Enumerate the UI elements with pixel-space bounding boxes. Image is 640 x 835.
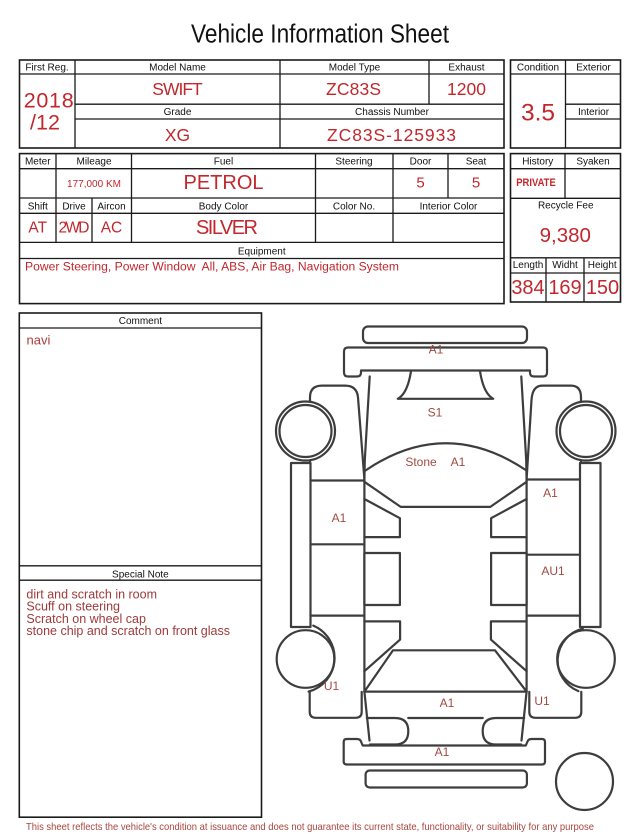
svg-text:A1: A1 xyxy=(429,343,444,357)
svg-text:A1: A1 xyxy=(451,455,466,469)
svg-text:This sheet reflects the vehicl: This sheet reflects the vehicle's condit… xyxy=(26,821,594,833)
svg-text:384: 384 xyxy=(511,277,544,299)
svg-text:Seat: Seat xyxy=(466,157,487,168)
svg-text:5: 5 xyxy=(472,175,480,192)
svg-text:Fuel: Fuel xyxy=(214,157,233,168)
svg-text:Model Type: Model Type xyxy=(329,63,381,74)
svg-text:stone chip and scratch on fron: stone chip and scratch on front glass xyxy=(26,624,230,638)
svg-text:Exhaust: Exhaust xyxy=(448,63,484,74)
svg-text:SWIFT: SWIFT xyxy=(152,79,203,99)
svg-text:Length: Length xyxy=(513,260,544,271)
svg-text:Special Note: Special Note xyxy=(112,570,169,581)
svg-text:Steering: Steering xyxy=(335,157,372,168)
svg-text:navi: navi xyxy=(27,333,51,348)
svg-text:2018: 2018 xyxy=(24,88,74,112)
svg-text:ZC83S: ZC83S xyxy=(326,79,381,99)
svg-text:Body Color: Body Color xyxy=(199,202,249,213)
svg-text:A1: A1 xyxy=(332,511,347,525)
svg-text:A1: A1 xyxy=(543,486,558,500)
svg-text:Syaken: Syaken xyxy=(576,157,609,168)
svg-text:History: History xyxy=(522,157,553,168)
svg-text:First Reg.: First Reg. xyxy=(25,63,68,74)
svg-text:PRIVATE: PRIVATE xyxy=(516,177,556,189)
svg-text:/12: /12 xyxy=(30,111,60,135)
svg-text:150: 150 xyxy=(586,277,619,299)
svg-text:Equipment: Equipment xyxy=(238,247,286,258)
svg-text:169: 169 xyxy=(548,277,581,299)
svg-text:AU1: AU1 xyxy=(541,564,565,578)
svg-text:Chassis Number: Chassis Number xyxy=(355,107,430,118)
svg-text:3.5: 3.5 xyxy=(521,99,555,126)
svg-text:AT: AT xyxy=(28,220,47,237)
svg-text:Drive: Drive xyxy=(62,202,86,213)
svg-text:Recycle Fee: Recycle Fee xyxy=(538,201,594,212)
svg-text:S1: S1 xyxy=(428,406,443,420)
svg-text:ZC83S-125933: ZC83S-125933 xyxy=(327,125,456,145)
svg-text:Widht: Widht xyxy=(552,260,578,271)
svg-text:Vehicle Information Sheet: Vehicle Information Sheet xyxy=(191,20,449,48)
svg-text:Interior Color: Interior Color xyxy=(420,202,478,213)
svg-text:Condition: Condition xyxy=(517,63,559,74)
svg-text:SILVER: SILVER xyxy=(196,217,258,239)
svg-text:XG: XG xyxy=(165,125,190,145)
svg-text:A1: A1 xyxy=(435,745,450,759)
svg-text:2WD: 2WD xyxy=(59,220,90,237)
svg-text:AC: AC xyxy=(101,220,123,237)
svg-text:Color No.: Color No. xyxy=(333,202,375,213)
svg-text:Shift: Shift xyxy=(28,202,48,213)
svg-text:PETROL: PETROL xyxy=(183,172,263,194)
svg-text:Exterior: Exterior xyxy=(576,63,611,74)
svg-text:Mileage: Mileage xyxy=(76,157,111,168)
svg-text:Power Steering, Power Window: Power Steering, Power Window All, ABS, A… xyxy=(25,262,399,274)
svg-text:Comment: Comment xyxy=(119,316,163,327)
svg-text:Height: Height xyxy=(588,260,617,271)
svg-text:U1: U1 xyxy=(324,679,340,693)
svg-text:Meter: Meter xyxy=(25,157,51,168)
svg-text:Aircon: Aircon xyxy=(97,202,125,213)
svg-text:A1: A1 xyxy=(440,696,455,710)
svg-text:U1: U1 xyxy=(534,694,550,708)
svg-text:177,000 KM: 177,000 KM xyxy=(67,179,121,190)
svg-text:Model Name: Model Name xyxy=(149,63,206,74)
svg-text:Grade: Grade xyxy=(164,107,192,118)
svg-text:Stone: Stone xyxy=(405,455,437,469)
svg-text:Interior: Interior xyxy=(578,107,610,118)
svg-text:9,380: 9,380 xyxy=(540,224,591,247)
svg-text:1200: 1200 xyxy=(447,79,486,99)
svg-text:5: 5 xyxy=(416,175,424,192)
svg-text:Door: Door xyxy=(410,157,432,168)
